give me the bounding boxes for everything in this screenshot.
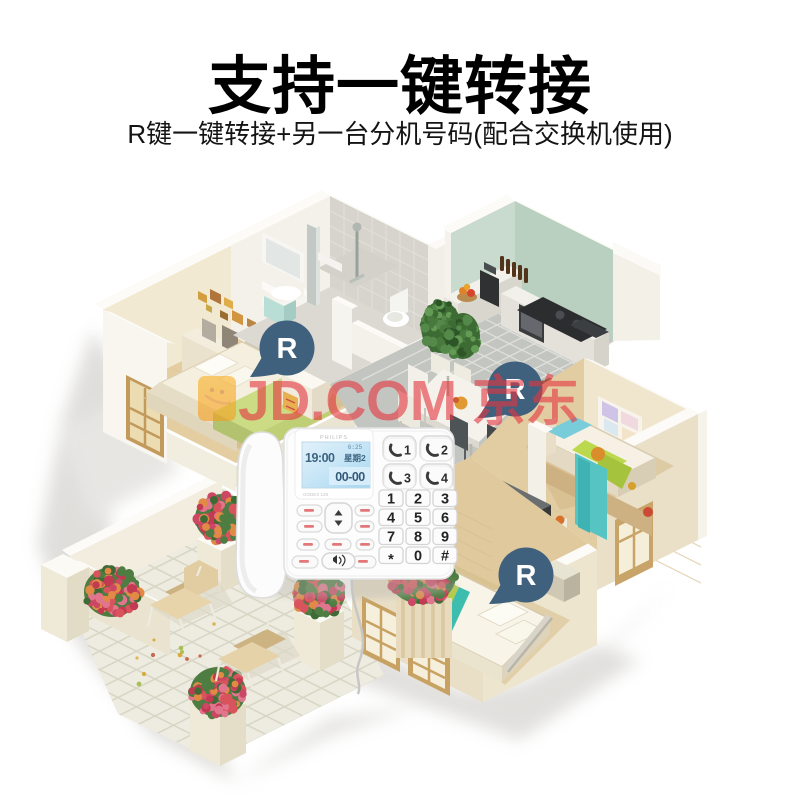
svg-text:5: 5: [414, 511, 422, 527]
svg-text:1: 1: [387, 492, 395, 508]
svg-text:7: 7: [387, 530, 395, 546]
svg-text:JD.COM 京东: JD.COM 京东: [238, 369, 579, 433]
svg-text:R: R: [277, 333, 298, 365]
svg-text:4: 4: [441, 472, 448, 486]
svg-text:2: 2: [414, 492, 422, 508]
svg-text:GODEX 128: GODEX 128: [303, 492, 329, 497]
svg-text:00-00: 00-00: [335, 470, 365, 484]
svg-text:*: *: [388, 552, 394, 568]
svg-text:星期2: 星期2: [344, 453, 366, 463]
svg-text:3: 3: [441, 492, 449, 508]
svg-text:6: 6: [441, 511, 449, 527]
svg-text:6:25: 6:25: [348, 444, 363, 451]
svg-text:19:00: 19:00: [305, 451, 335, 465]
svg-text:3: 3: [404, 472, 411, 486]
svg-text:9: 9: [441, 530, 449, 546]
svg-text:8: 8: [414, 530, 422, 546]
svg-text:PHILIPS: PHILIPS: [320, 435, 348, 441]
svg-text:1: 1: [404, 444, 411, 458]
svg-text:4: 4: [387, 511, 395, 527]
svg-text:R: R: [516, 560, 537, 592]
svg-text:#: #: [441, 549, 449, 565]
svg-text:0: 0: [414, 549, 422, 565]
svg-text:2: 2: [441, 444, 448, 458]
